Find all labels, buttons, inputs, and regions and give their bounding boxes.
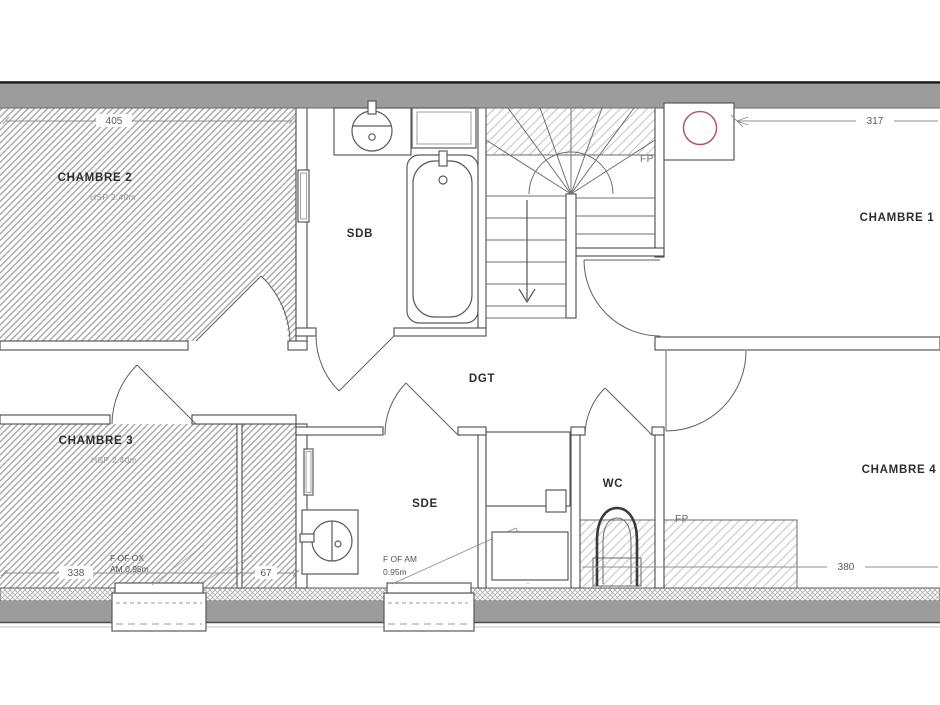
top-wall — [0, 84, 940, 108]
room-label-chambre-2: CHAMBRE 2 — [58, 172, 133, 184]
sde-washbasin — [300, 510, 358, 574]
dim-405: 405 — [106, 116, 123, 127]
window-note-chambre3-line1: F OF OX — [110, 553, 144, 563]
door-sdb — [316, 336, 394, 391]
dim-338: 338 — [68, 568, 85, 579]
fp-note-stairs: FP — [640, 154, 654, 165]
stair-treads-right — [576, 198, 655, 234]
stair-spine — [566, 194, 576, 318]
window-note-sde-line2: 0.95m — [383, 567, 407, 577]
ceiling-note-chambre-2: HSP 2.40m — [90, 192, 136, 202]
room-label-wc: WC — [603, 478, 624, 490]
floor-plan-page: CHAMBRE 2 HSP 2.40m CHAMBRE 1 CHAMBRE 3 … — [0, 0, 940, 705]
door-wc — [585, 388, 652, 435]
window-note-sde-line1: F OF AM — [383, 554, 417, 564]
bathtub — [407, 151, 478, 323]
floor-plan-drawing: CHAMBRE 2 HSP 2.40m CHAMBRE 1 CHAMBRE 3 … — [0, 0, 940, 705]
room-label-chambre-1: CHAMBRE 1 — [860, 212, 935, 224]
closet — [486, 432, 570, 580]
room-label-dgt: DGT — [469, 373, 495, 385]
door-chambre4 — [666, 351, 746, 431]
door-chambre1 — [584, 260, 660, 336]
dim-380: 380 — [838, 562, 855, 573]
room-label-sdb: SDB — [347, 228, 373, 240]
door-sde — [385, 383, 458, 435]
room-label-chambre-3: CHAMBRE 3 — [59, 435, 134, 447]
chambre2-wall-door-panel — [298, 170, 309, 222]
sdb-shower-tray — [412, 108, 476, 148]
room-label-sde: SDE — [412, 498, 438, 510]
fp-note-right: FP — [675, 514, 689, 525]
sdb-vanity — [334, 101, 411, 155]
sde-radiator — [304, 449, 313, 495]
ceiling-note-chambre-3: HSP 2.40m — [91, 455, 137, 465]
stair-down-arrow — [519, 200, 535, 302]
room-label-chambre-4: CHAMBRE 4 — [862, 464, 937, 476]
flue-box — [664, 103, 734, 160]
dim-317: 317 — [867, 116, 884, 127]
door-chambre3 — [112, 365, 196, 424]
window-note-chambre3-line2: AM 0.95m — [110, 564, 149, 574]
dim-67: 67 — [260, 568, 272, 579]
fp-zone-hatch — [580, 520, 797, 588]
